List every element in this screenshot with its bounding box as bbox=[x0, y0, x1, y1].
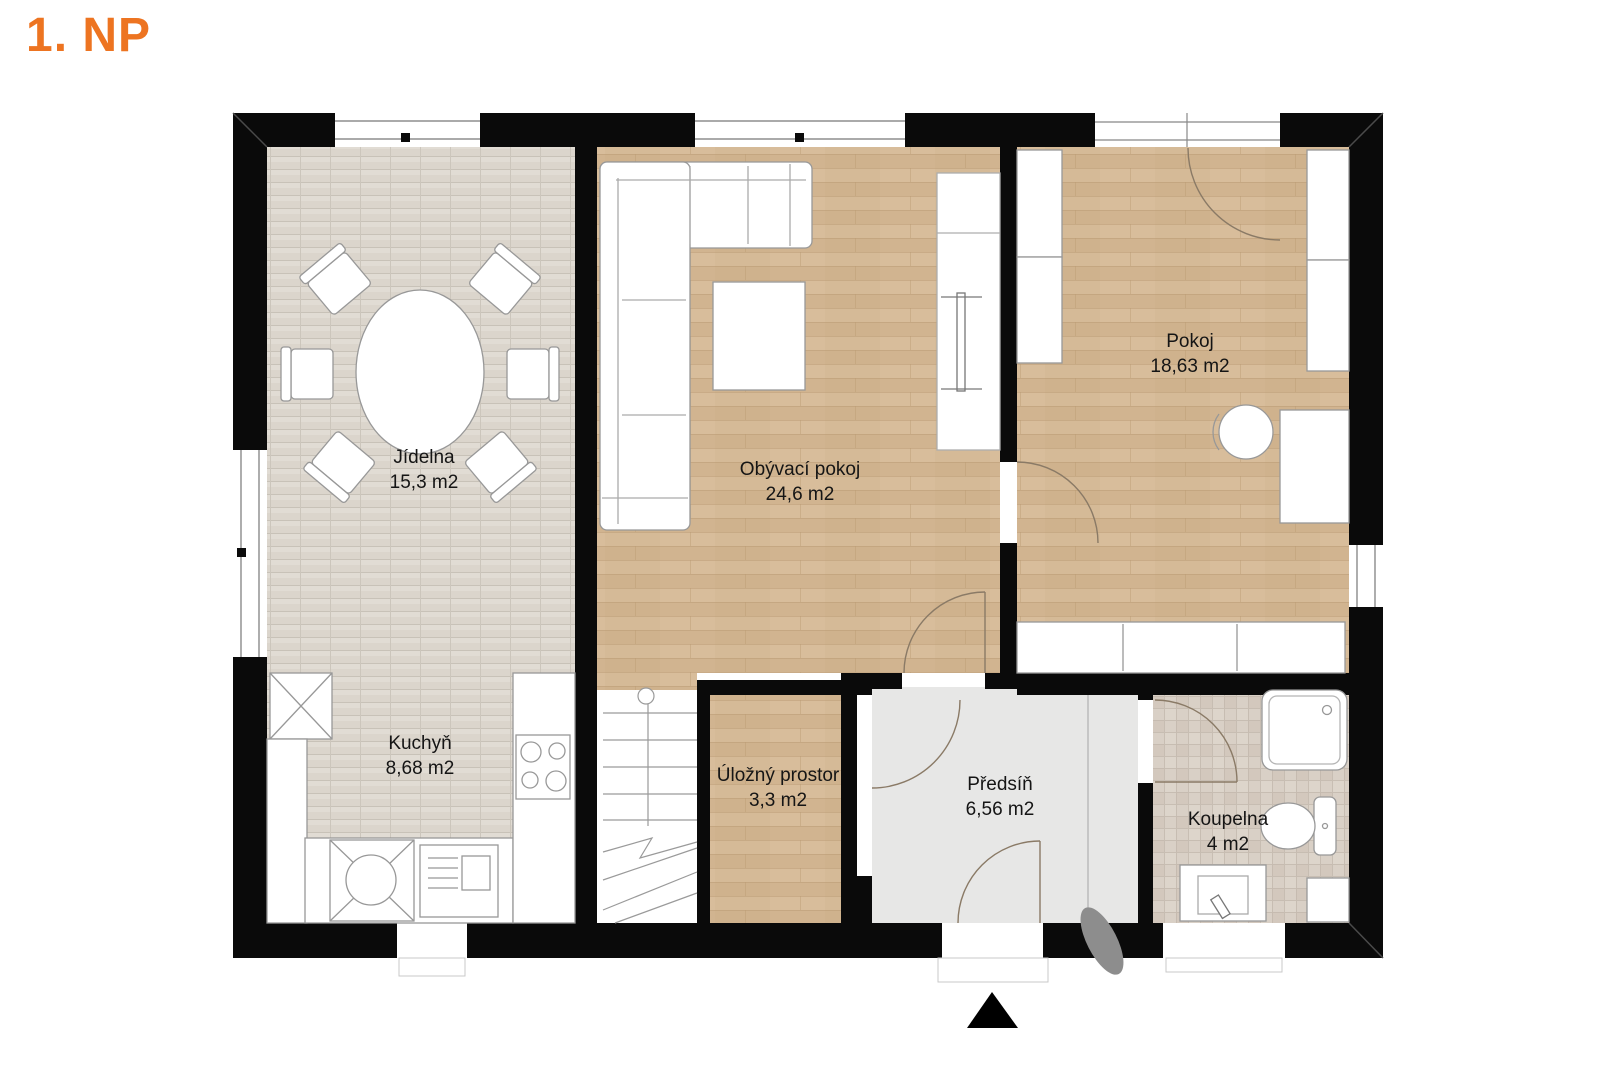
room-label-predsin: Předsíň 6,56 m2 bbox=[966, 772, 1035, 822]
room-area: 8,68 m2 bbox=[386, 756, 455, 781]
wall-left-1 bbox=[233, 113, 267, 450]
kitchen-stove bbox=[516, 735, 570, 799]
floor-plan-drawing bbox=[0, 0, 1620, 1080]
bedroom-desk bbox=[1280, 410, 1349, 523]
wall-hall-bath-upper bbox=[1138, 687, 1153, 700]
bedroom-shelf-1 bbox=[1307, 150, 1349, 260]
room-name: Úložný prostor bbox=[717, 763, 840, 788]
kitchen-cabinet-x bbox=[270, 673, 332, 739]
window-right bbox=[1349, 545, 1383, 607]
wall-dining-living bbox=[575, 147, 597, 923]
room-label-pokoj: Pokoj 18,63 m2 bbox=[1150, 329, 1229, 379]
wall-hall-bath-lower bbox=[1138, 783, 1153, 923]
room-name: Předsíň bbox=[966, 772, 1035, 797]
window-living-top bbox=[695, 113, 905, 147]
room-label-jidelna: Jídelna 15,3 m2 bbox=[390, 445, 459, 495]
stair-newel-post bbox=[638, 688, 654, 704]
kitchen-dishwasher bbox=[420, 845, 498, 917]
room-label-kuchyn: Kuchyň 8,68 m2 bbox=[386, 731, 455, 781]
entrance-opening bbox=[938, 923, 1048, 982]
entrance-arrow bbox=[967, 992, 1018, 1028]
wall-left-2 bbox=[233, 657, 267, 958]
wall-right-1 bbox=[1349, 113, 1383, 545]
bedroom-bottom-cabinets bbox=[1017, 622, 1345, 673]
room-label-obyvaci-pokoj: Obývací pokoj 24,6 m2 bbox=[740, 457, 860, 507]
door-gap-storage-hall bbox=[857, 695, 872, 876]
bathroom-cabinet bbox=[1307, 878, 1349, 922]
room-area: 18,63 m2 bbox=[1150, 354, 1229, 379]
room-name: Kuchyň bbox=[386, 731, 455, 756]
room-name: Pokoj bbox=[1150, 329, 1229, 354]
tv-screen bbox=[957, 293, 965, 391]
living-room-floor-stair-strip bbox=[597, 673, 697, 690]
room-name: Jídelna bbox=[390, 445, 459, 470]
wall-storage-left bbox=[697, 680, 710, 923]
kitchen-counter-left bbox=[267, 739, 307, 923]
bathroom-sink bbox=[1180, 865, 1266, 921]
kitchen-sink bbox=[330, 840, 414, 921]
room-label-koupelna: Koupelna 4 m2 bbox=[1188, 807, 1268, 857]
window-dining-top bbox=[335, 113, 480, 147]
room-area: 24,6 m2 bbox=[740, 482, 860, 507]
floor-plan-page: 1. NP bbox=[0, 0, 1620, 1080]
coffee-table bbox=[713, 282, 805, 390]
room-label-ulozny-prostor: Úložný prostor 3,3 m2 bbox=[717, 763, 840, 813]
room-area: 3,3 m2 bbox=[717, 788, 840, 813]
tv-cabinet bbox=[937, 173, 1000, 450]
staircase-area bbox=[597, 690, 697, 923]
bedroom-shelf-2 bbox=[1307, 260, 1349, 371]
room-area: 15,3 m2 bbox=[390, 470, 459, 495]
window-left bbox=[233, 450, 267, 657]
wall-right-2 bbox=[1349, 607, 1383, 958]
wall-storage-top bbox=[710, 680, 841, 695]
bedroom-wardrobe-2 bbox=[1017, 257, 1062, 363]
room-name: Obývací pokoj bbox=[740, 457, 860, 482]
dining-table bbox=[356, 290, 484, 454]
room-name: Koupelna bbox=[1188, 807, 1268, 832]
wall-living-bedroom-upper bbox=[1000, 147, 1017, 462]
shower bbox=[1262, 690, 1347, 770]
balcony-door-bedroom bbox=[1095, 113, 1280, 147]
wall-living-bedroom-lower bbox=[1000, 543, 1017, 673]
opening-kitchen-bottom bbox=[397, 923, 467, 976]
room-area: 6,56 m2 bbox=[966, 797, 1035, 822]
opening-bathroom-bottom bbox=[1163, 923, 1285, 972]
wall-bottom-2 bbox=[467, 923, 942, 958]
wall-living-hall-right bbox=[985, 673, 1017, 689]
room-area: 4 m2 bbox=[1188, 832, 1268, 857]
bedroom-wardrobe-1 bbox=[1017, 150, 1062, 257]
